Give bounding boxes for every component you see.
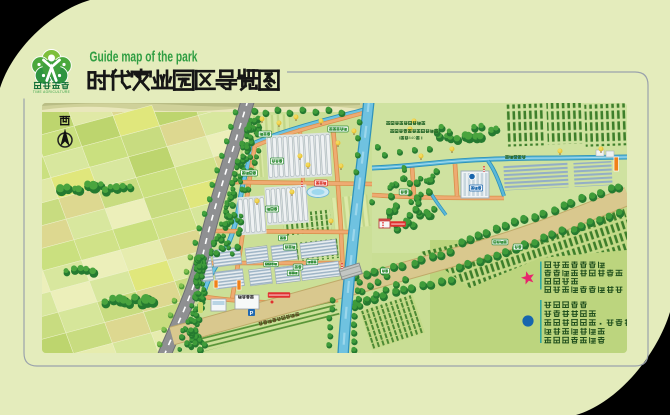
svg-text:0: 0 xyxy=(413,136,415,140)
svg-text:Guide map of the park: Guide map of the park xyxy=(90,49,198,66)
svg-text:TIME AGRICULTURE: TIME AGRICULTURE xyxy=(33,90,70,94)
svg-text:P: P xyxy=(250,311,254,317)
